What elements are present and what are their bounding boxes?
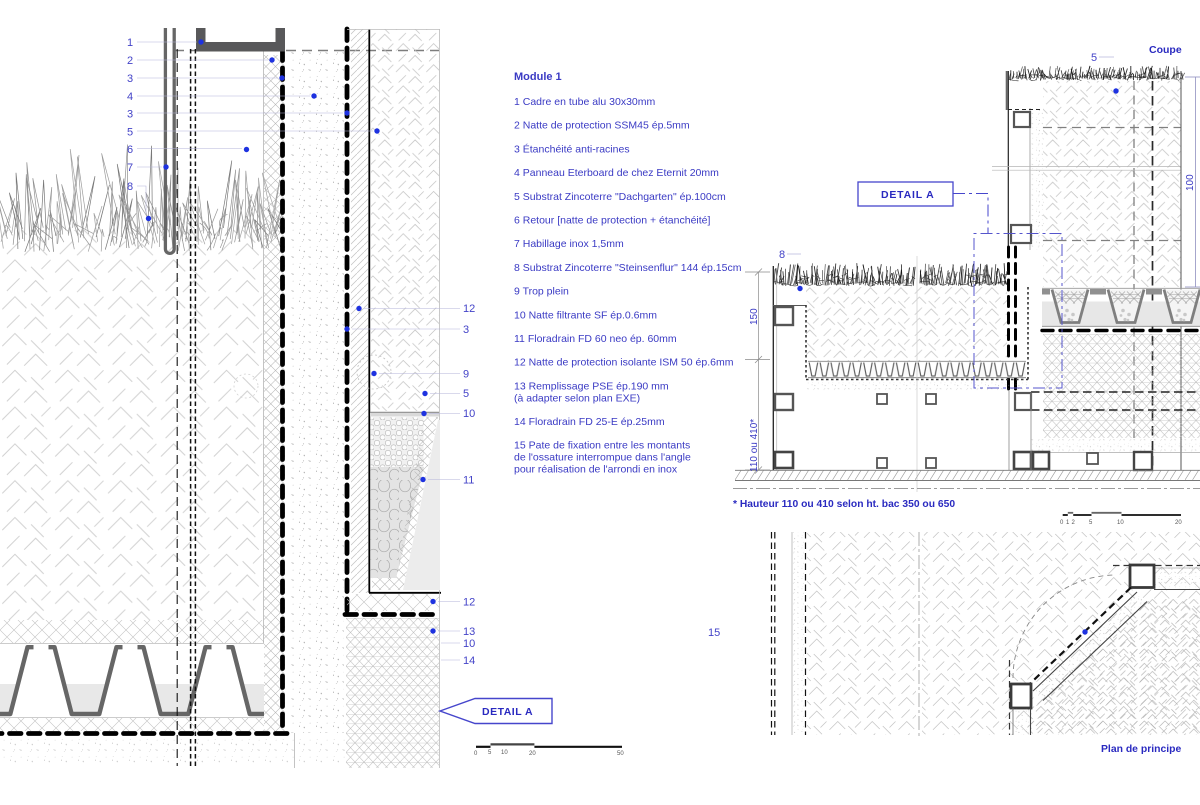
- svg-text:15: 15: [708, 627, 720, 639]
- svg-text:DETAIL A: DETAIL A: [881, 189, 934, 201]
- svg-text:5: 5: [1091, 52, 1097, 64]
- svg-text:2: 2: [127, 55, 133, 67]
- svg-text:5: 5: [127, 127, 133, 139]
- svg-text:10: 10: [463, 638, 475, 650]
- svg-text:14 Floradrain FD 25-E ép.25mm: 14 Floradrain FD 25-E ép.25mm: [514, 416, 665, 428]
- svg-text:10: 10: [501, 750, 508, 756]
- svg-text:(à adapter selon plan EXE): (à adapter selon plan EXE): [514, 392, 640, 404]
- svg-text:1: 1: [127, 37, 133, 49]
- svg-text:12: 12: [463, 597, 475, 609]
- svg-text:20: 20: [529, 751, 536, 757]
- svg-text:20: 20: [1175, 520, 1182, 526]
- svg-text:6 Retour [natte de protection: 6 Retour [natte de protection + étanchéi…: [514, 215, 711, 227]
- svg-text:9 Trop plein: 9 Trop plein: [514, 286, 569, 298]
- svg-text:7: 7: [127, 162, 133, 174]
- svg-text:10: 10: [1117, 520, 1124, 526]
- svg-text:3 Étanchéité anti-racines: 3 Étanchéité anti-racines: [514, 142, 630, 155]
- svg-text:6: 6: [127, 144, 133, 156]
- svg-text:2 Natte de protection SSM45 ép: 2 Natte de protection SSM45 ép.5mm: [514, 120, 690, 132]
- svg-text:8: 8: [779, 249, 785, 261]
- svg-text:DETAIL A: DETAIL A: [482, 706, 533, 718]
- svg-text:3: 3: [127, 73, 133, 85]
- svg-text:* Hauteur 110 ou 410 selon ht.: * Hauteur 110 ou 410 selon ht. bac 350 o…: [733, 499, 955, 510]
- svg-text:4 Panneau Eterboard de chez Et: 4 Panneau Eterboard de chez Eternit 20mm: [514, 167, 719, 179]
- svg-text:9: 9: [463, 369, 469, 381]
- svg-text:Plan de principe: Plan de principe: [1101, 744, 1181, 755]
- svg-text:50: 50: [617, 751, 624, 757]
- svg-text:12 Natte de protection isolant: 12 Natte de protection isolante ISM 50 é…: [514, 357, 734, 369]
- svg-text:3: 3: [463, 324, 469, 336]
- svg-text:11 Floradrain FD 60 neo ép. 60: 11 Floradrain FD 60 neo ép. 60mm: [514, 333, 677, 345]
- svg-text:110 ou 410*: 110 ou 410*: [749, 419, 760, 472]
- svg-text:11: 11: [463, 475, 474, 487]
- svg-text:14: 14: [463, 655, 475, 667]
- svg-text:4: 4: [127, 91, 133, 103]
- svg-text:Module 1: Module 1: [514, 71, 562, 83]
- svg-text:Coupe: Coupe: [1149, 44, 1182, 56]
- svg-text:pour réalisation de l'arrondi: pour réalisation de l'arrondi en inox: [514, 463, 678, 475]
- svg-text:3: 3: [127, 109, 133, 121]
- svg-text:100: 100: [1185, 174, 1196, 191]
- svg-text:10: 10: [463, 408, 475, 420]
- svg-text:12: 12: [463, 303, 475, 315]
- svg-text:1 Cadre en tube alu 30x30mm: 1 Cadre en tube alu 30x30mm: [514, 96, 656, 108]
- svg-text:10 Natte filtrante SF ép.0.6mm: 10 Natte filtrante SF ép.0.6mm: [514, 309, 657, 321]
- svg-text:de l'ossature interrompue dans: de l'ossature interrompue dans l'angle: [514, 452, 691, 464]
- svg-text:15 Pate de fixation entre les: 15 Pate de fixation entre les montants: [514, 440, 690, 452]
- svg-text:13: 13: [463, 626, 475, 638]
- svg-text:13 Remplissage PSE ép.190 mm: 13 Remplissage PSE ép.190 mm: [514, 380, 669, 392]
- svg-text:150: 150: [749, 308, 760, 325]
- svg-text:7 Habillage inox 1,5mm: 7 Habillage inox 1,5mm: [514, 238, 624, 250]
- svg-text:8 Substrat Zincoterre "Steinse: 8 Substrat Zincoterre "Steinsenflur" 144…: [514, 262, 742, 274]
- svg-text:5: 5: [463, 388, 469, 400]
- svg-text:8: 8: [127, 181, 133, 193]
- svg-text:5 Substrat Zincoterre "Dachgar: 5 Substrat Zincoterre "Dachgarten" ép.10…: [514, 191, 726, 203]
